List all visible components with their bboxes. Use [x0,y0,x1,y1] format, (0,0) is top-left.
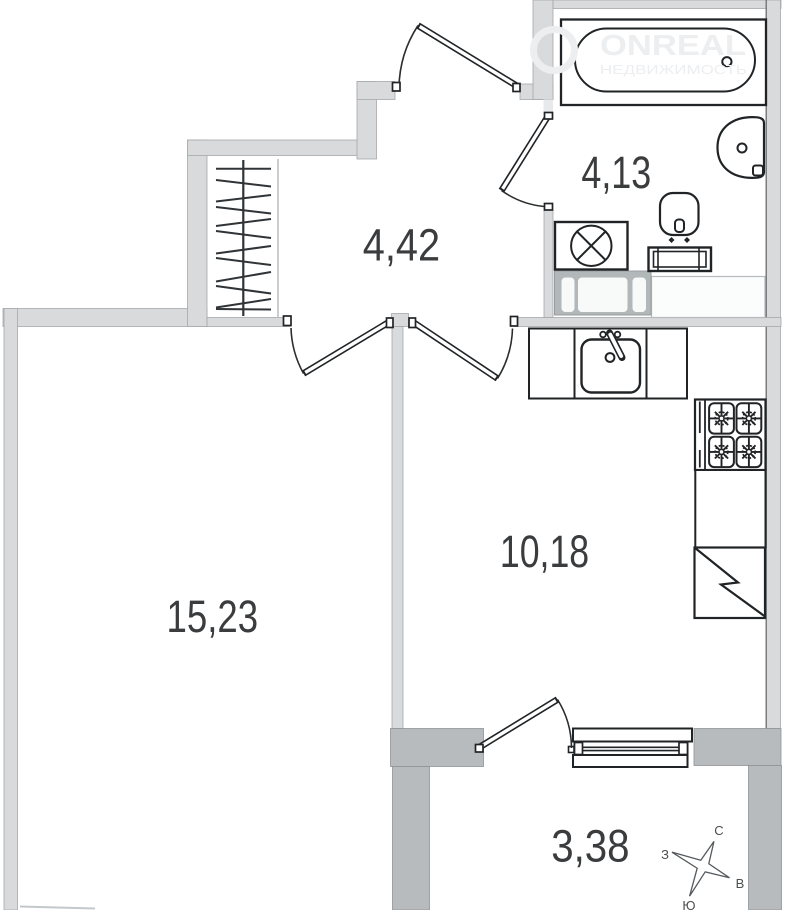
svg-text:4,42: 4,42 [363,219,440,270]
svg-text:НЕДВИЖИМОСТЬ: НЕДВИЖИМОСТЬ [600,63,747,77]
svg-text:ONREAL: ONREAL [600,30,746,62]
svg-text:З: З [661,847,669,862]
svg-text:3,38: 3,38 [551,820,629,871]
svg-text:Ю: Ю [682,898,695,910]
svg-text:4,13: 4,13 [581,147,651,198]
svg-text:10,18: 10,18 [500,526,589,577]
svg-text:15,23: 15,23 [167,591,259,642]
svg-text:В: В [736,876,745,891]
svg-text:С: С [714,823,723,838]
